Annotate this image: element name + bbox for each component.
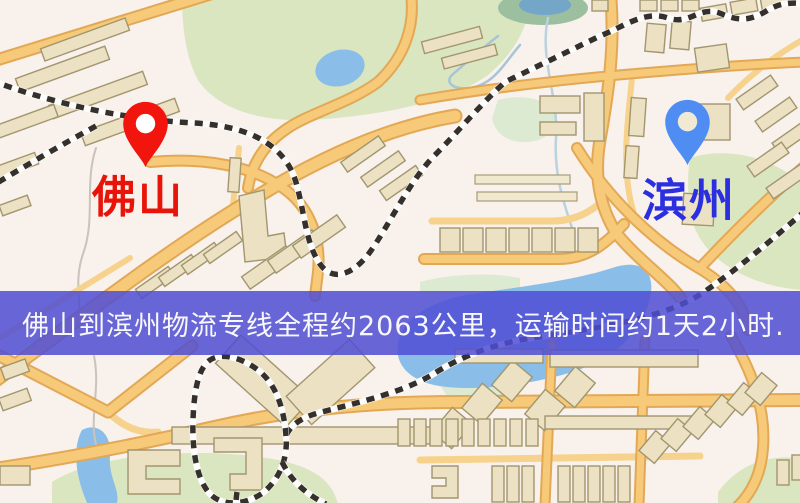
map-image (0, 0, 800, 503)
origin-city-label: 佛山 (92, 176, 184, 220)
logistics-route-map: 佛山 滨州 佛山到滨州物流专线全程约2063公里，运输时间约1天2小时. (0, 0, 800, 503)
destination-pin-icon (664, 99, 711, 166)
route-info-banner: 佛山到滨州物流专线全程约2063公里，运输时间约1天2小时. (0, 291, 800, 355)
origin-pin-icon (122, 101, 169, 168)
destination-city-label: 滨州 (642, 178, 736, 223)
